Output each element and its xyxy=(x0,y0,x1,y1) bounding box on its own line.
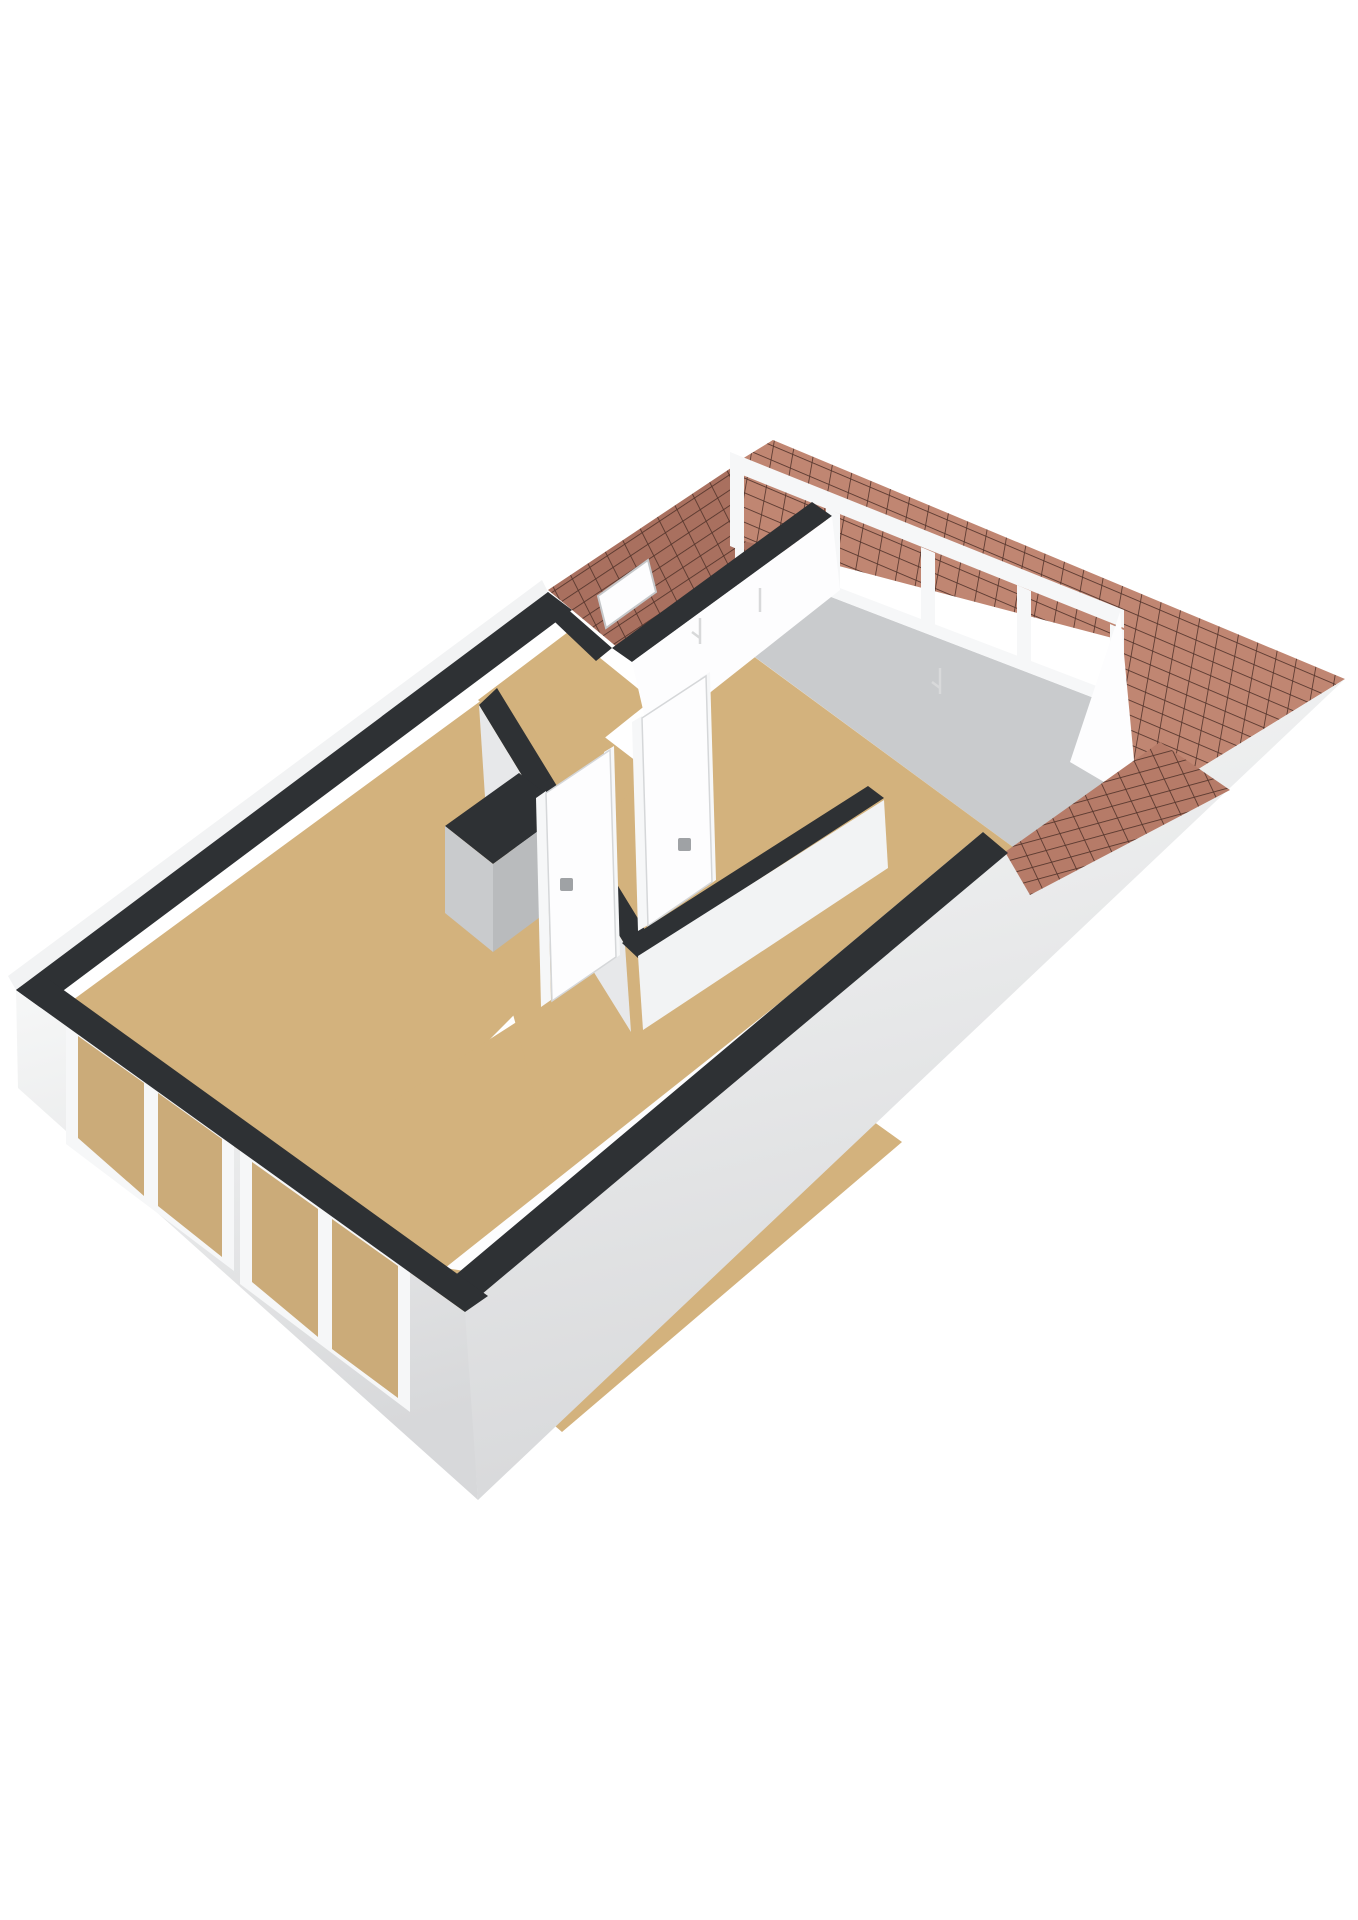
dormer-post-1 xyxy=(730,452,744,552)
door1-handle xyxy=(560,878,573,891)
floorplan-3d-render xyxy=(0,0,1358,1920)
door2-handle xyxy=(678,838,691,851)
door2-leaf xyxy=(642,676,712,926)
dormer-post-3 xyxy=(921,547,935,629)
floorplan-3d-viewport[interactable] xyxy=(0,0,1358,1920)
door1-leaf xyxy=(546,750,616,1001)
dormer-post-4 xyxy=(1017,585,1031,665)
